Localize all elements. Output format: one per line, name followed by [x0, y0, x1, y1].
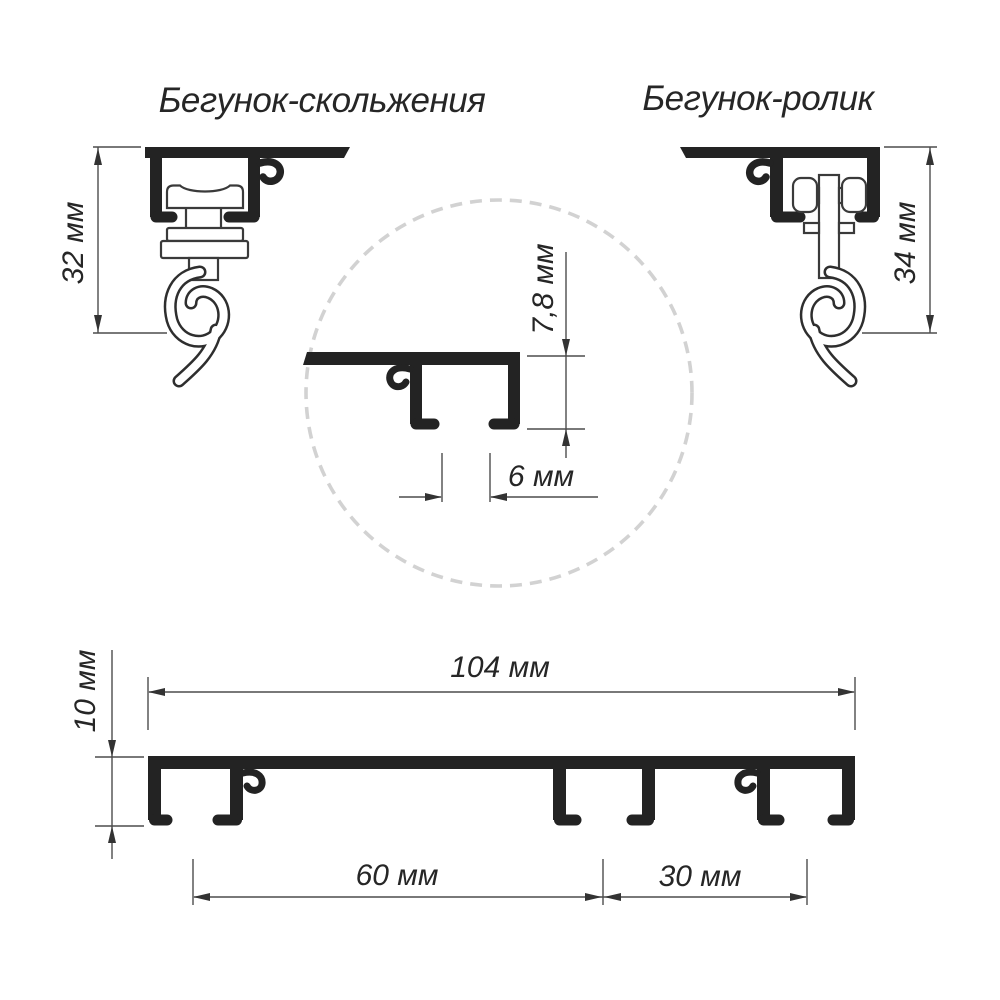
roller-tab-right [839, 223, 854, 233]
roller-title: Бегунок-ролик [642, 79, 873, 119]
dim-label-32mm: 32 мм [57, 202, 91, 285]
roller-hook [806, 272, 859, 381]
roller-wheel-left [793, 178, 817, 212]
roller-runner [793, 175, 866, 381]
bottom-rail-profile [148, 756, 855, 820]
dim-label-10mm: 10 мм [69, 650, 103, 733]
curtain-rail-diagram: Бегунок-скольжения Бегунок-ролик 32 мм 3… [0, 0, 1000, 1000]
slider-title: Бегунок-скольжения [159, 81, 486, 121]
dim-label-30mm: 30 мм [659, 860, 742, 894]
detail-magnifier-circle [306, 200, 692, 586]
dim-label-6mm: 6 мм [508, 460, 574, 494]
dim-label-104mm: 104 мм [450, 651, 550, 685]
slider-hook [170, 272, 223, 381]
technical-drawing [0, 0, 1000, 1000]
dim-label-34mm: 34 мм [889, 202, 923, 285]
roller-tab-left [804, 223, 819, 233]
dim-label-60mm: 60 мм [356, 859, 439, 893]
roller-wheel-right [842, 178, 866, 212]
detail-rail-profile [303, 352, 520, 424]
dim-label-7-8mm: 7,8 мм [527, 243, 561, 334]
